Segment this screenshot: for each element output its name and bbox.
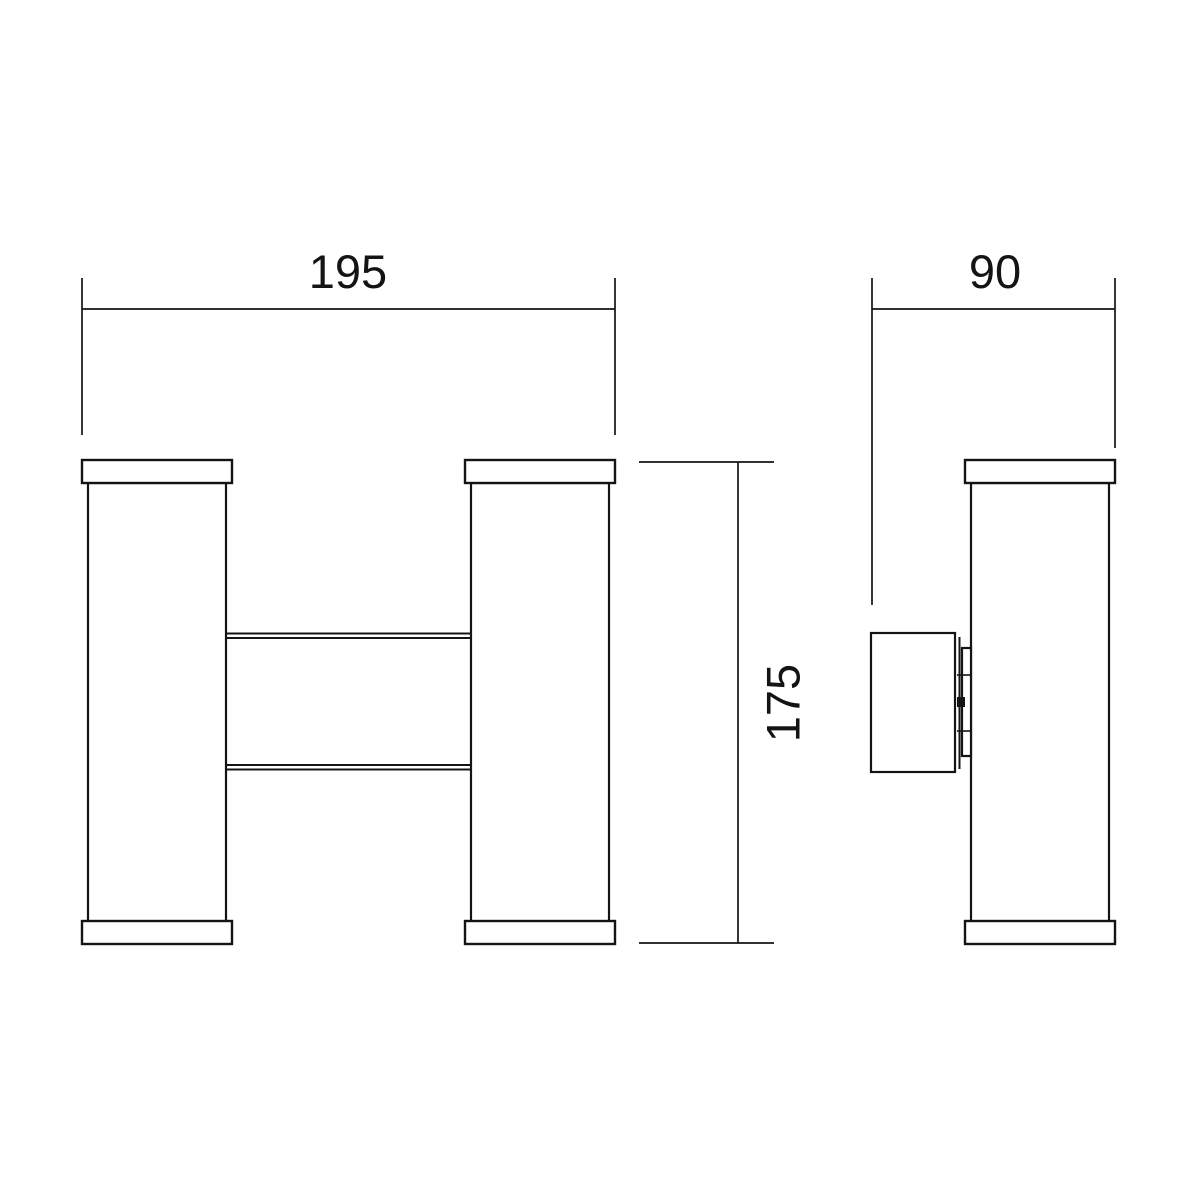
depth-dimension-label: 90 [969, 245, 1021, 298]
height-dimension-label: 175 [756, 664, 809, 742]
front-right-cylinder-body [471, 483, 609, 922]
screw-detail [957, 697, 965, 707]
front-right-cylinder-bottom-cap [465, 921, 615, 944]
width-dimension-label: 195 [309, 245, 387, 298]
side-cylinder-body [971, 483, 1109, 922]
front-view [82, 460, 615, 944]
front-left-cylinder-top-cap [82, 460, 232, 483]
side-view [871, 460, 1115, 944]
side-cylinder-top-cap [965, 460, 1115, 483]
side-cylinder-bottom-cap [965, 921, 1115, 944]
mounting-box [871, 633, 955, 772]
technical-drawing: 195 90 175 [0, 0, 1200, 1200]
height-dimension: 175 [639, 462, 809, 943]
width-dimension: 195 [82, 245, 615, 435]
front-left-cylinder-body [88, 483, 226, 922]
connecting-bracket [226, 634, 471, 770]
front-left-cylinder-bottom-cap [82, 921, 232, 944]
front-right-cylinder-top-cap [465, 460, 615, 483]
